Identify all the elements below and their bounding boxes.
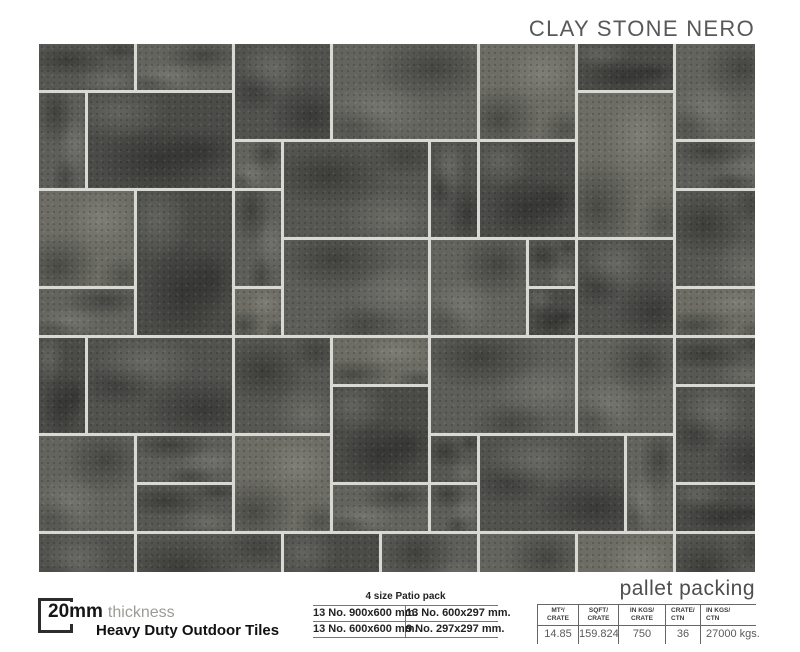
tile [137, 44, 232, 90]
tile [529, 240, 575, 286]
tile [39, 191, 134, 286]
tile [88, 338, 232, 433]
tile [235, 436, 330, 531]
tile [578, 93, 673, 237]
tile-pattern-image [39, 44, 755, 572]
thickness-label: thickness [108, 604, 175, 621]
pallet-value: 27000 kgs. [701, 625, 756, 644]
table-header-row: MT²/ CRATE SQFT/ CRATE IN KGS/ CRATE CRA… [538, 605, 756, 626]
tile [88, 93, 232, 188]
table-row: 13 No. 600x600 mm. 9 No. 297x297 mm. [313, 622, 498, 638]
tile [431, 485, 477, 531]
tile [676, 534, 755, 572]
tile [39, 534, 134, 572]
tile [137, 485, 232, 531]
tile [431, 338, 575, 433]
tile [39, 44, 134, 90]
pallet-value: 159.824 [579, 625, 619, 644]
tile [676, 191, 755, 286]
tile [578, 240, 673, 335]
pallet-value: 36 [666, 625, 701, 644]
column-header: IN KGS/ CTN [701, 605, 756, 626]
tile [39, 436, 134, 531]
tile [284, 534, 379, 572]
tile [333, 44, 477, 139]
pallet-packing-title: pallet packing [620, 577, 755, 601]
tile [284, 142, 428, 237]
column-header: IN KGS/ CRATE [619, 605, 666, 626]
catalog-page: CLAY STONE NERO 20mmthickness Heavy Duty… [0, 0, 800, 652]
column-header: SQFT/ CRATE [579, 605, 619, 626]
tile [235, 142, 281, 188]
tile [676, 44, 755, 139]
table-row: 13 No. 900x600 mm. 13 No. 600x297 mm. [313, 606, 498, 622]
tile [284, 240, 428, 335]
column-header: MT²/ CRATE [538, 605, 579, 626]
tile [382, 534, 477, 572]
tile [235, 44, 330, 139]
tile [676, 338, 755, 384]
tile [578, 534, 673, 572]
pallet-value: 14.85 [538, 625, 579, 644]
tile [39, 338, 85, 433]
tile [235, 338, 330, 433]
tile [431, 142, 477, 237]
table-row: 14.85 159.824 750 36 27000 kgs. [538, 625, 756, 644]
tile [676, 142, 755, 188]
product-subtitle: Heavy Duty Outdoor Tiles [96, 622, 279, 639]
tile [39, 289, 134, 335]
thickness-value: 20mm [48, 601, 103, 622]
patio-cell: 13 No. 900x600 mm. [313, 606, 406, 622]
page-title: CLAY STONE NERO [529, 16, 755, 42]
pallet-value: 750 [619, 625, 666, 644]
pallet-packing-table: MT²/ CRATE SQFT/ CRATE IN KGS/ CRATE CRA… [537, 604, 756, 644]
tile [676, 387, 755, 482]
tile [235, 191, 281, 286]
patio-pack-title: 4 size Patio pack [313, 591, 498, 602]
tile [137, 436, 232, 482]
tile [480, 436, 624, 531]
tile [137, 191, 232, 335]
tile [627, 436, 673, 531]
column-header: CRATE/ CTN [666, 605, 701, 626]
tile [431, 436, 477, 482]
tile [333, 485, 428, 531]
patio-pack-block: 4 size Patio pack 13 No. 900x600 mm. 13 … [313, 591, 498, 638]
tile [676, 485, 755, 531]
tile [39, 93, 85, 188]
patio-cell: 9 No. 297x297 mm. [406, 622, 499, 638]
tile [676, 289, 755, 335]
tile [578, 338, 673, 433]
tile [578, 44, 673, 90]
patio-cell: 13 No. 600x297 mm. [406, 606, 499, 622]
tile [333, 387, 428, 482]
tile [235, 289, 281, 335]
patio-pack-table: 13 No. 900x600 mm. 13 No. 600x297 mm. 13… [313, 605, 498, 638]
tile [529, 289, 575, 335]
tile [137, 534, 281, 572]
tile [480, 142, 575, 237]
tile [480, 534, 575, 572]
tile [333, 338, 428, 384]
patio-cell: 13 No. 600x600 mm. [313, 622, 406, 638]
thickness-line: 20mmthickness [47, 602, 178, 624]
pallet-packing-block: MT²/ CRATE SQFT/ CRATE IN KGS/ CRATE CRA… [537, 604, 755, 644]
tile [480, 44, 575, 139]
tile [431, 240, 526, 335]
